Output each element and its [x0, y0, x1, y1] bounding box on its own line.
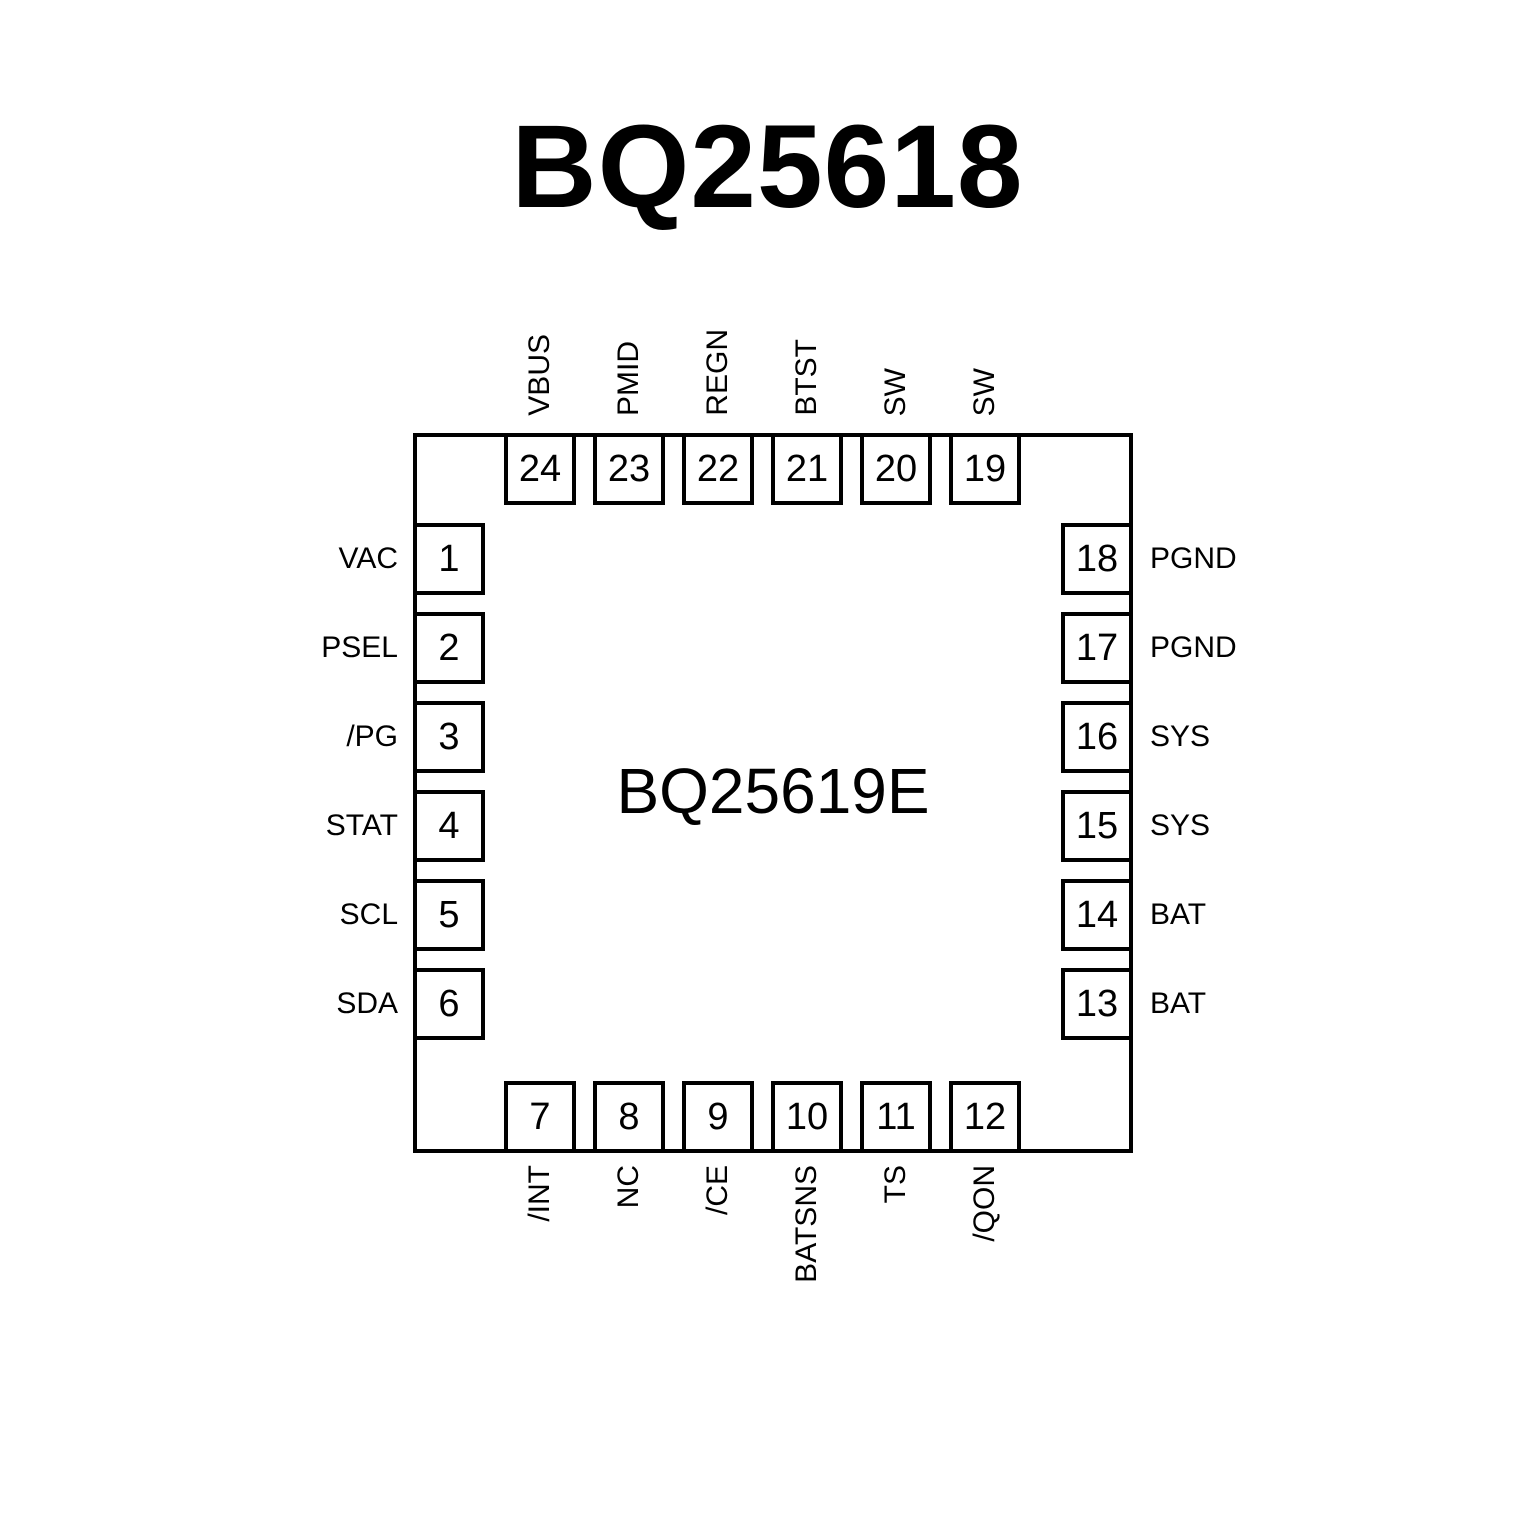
- pin-7: 7: [504, 1081, 576, 1153]
- pin-8: 8: [593, 1081, 665, 1153]
- pin-15-label: SYS: [1150, 808, 1400, 844]
- pin-3-label: /PG: [148, 719, 398, 755]
- pin-14-label: BAT: [1150, 897, 1400, 933]
- pin-24-label: VBUS: [521, 334, 559, 416]
- pin-2: 2: [413, 612, 485, 684]
- pin-4: 4: [413, 790, 485, 862]
- pin-23: 23: [593, 433, 665, 505]
- pin-16: 16: [1061, 701, 1133, 773]
- pin-19: 19: [949, 433, 1021, 505]
- page-title: BQ25618: [0, 104, 1535, 230]
- pin-20: 20: [860, 433, 932, 505]
- pin-2-label: PSEL: [148, 630, 398, 666]
- pin-12-label: /QON: [966, 1165, 1004, 1242]
- pin-6-label: SDA: [148, 986, 398, 1022]
- pin-14: 14: [1061, 879, 1133, 951]
- pin-1-label: VAC: [148, 541, 398, 577]
- pin-24: 24: [504, 433, 576, 505]
- pin-17: 17: [1061, 612, 1133, 684]
- pin-4-label: STAT: [148, 808, 398, 844]
- pin-21-label: BTST: [788, 339, 826, 416]
- pin-23-label: PMID: [610, 341, 648, 416]
- pin-8-label: NC: [610, 1165, 648, 1208]
- pin-9-label: /CE: [699, 1165, 737, 1215]
- pinout-page: { "page": { "title": "BQ25618" }, "chip"…: [0, 0, 1535, 1535]
- pin-11: 11: [860, 1081, 932, 1153]
- pin-13: 13: [1061, 968, 1133, 1040]
- pin-22-label: REGN: [699, 329, 737, 416]
- pin-15: 15: [1061, 790, 1133, 862]
- pin-11-label: TS: [877, 1165, 915, 1203]
- chip-part-number: BQ25619E: [413, 756, 1133, 826]
- pin-9: 9: [682, 1081, 754, 1153]
- pin-22: 22: [682, 433, 754, 505]
- pin-10: 10: [771, 1081, 843, 1153]
- pin-21: 21: [771, 433, 843, 505]
- pin-17-label: PGND: [1150, 630, 1400, 666]
- pin-7-label: /INT: [521, 1165, 559, 1222]
- pin-1: 1: [413, 523, 485, 595]
- pin-19-label: SW: [966, 368, 1004, 416]
- pin-20-label: SW: [877, 368, 915, 416]
- pin-18-label: PGND: [1150, 541, 1400, 577]
- pin-13-label: BAT: [1150, 986, 1400, 1022]
- pin-5: 5: [413, 879, 485, 951]
- pin-3: 3: [413, 701, 485, 773]
- pin-16-label: SYS: [1150, 719, 1400, 755]
- pin-12: 12: [949, 1081, 1021, 1153]
- pin-6: 6: [413, 968, 485, 1040]
- pin-18: 18: [1061, 523, 1133, 595]
- pin-5-label: SCL: [148, 897, 398, 933]
- pin-10-label: BATSNS: [788, 1165, 826, 1283]
